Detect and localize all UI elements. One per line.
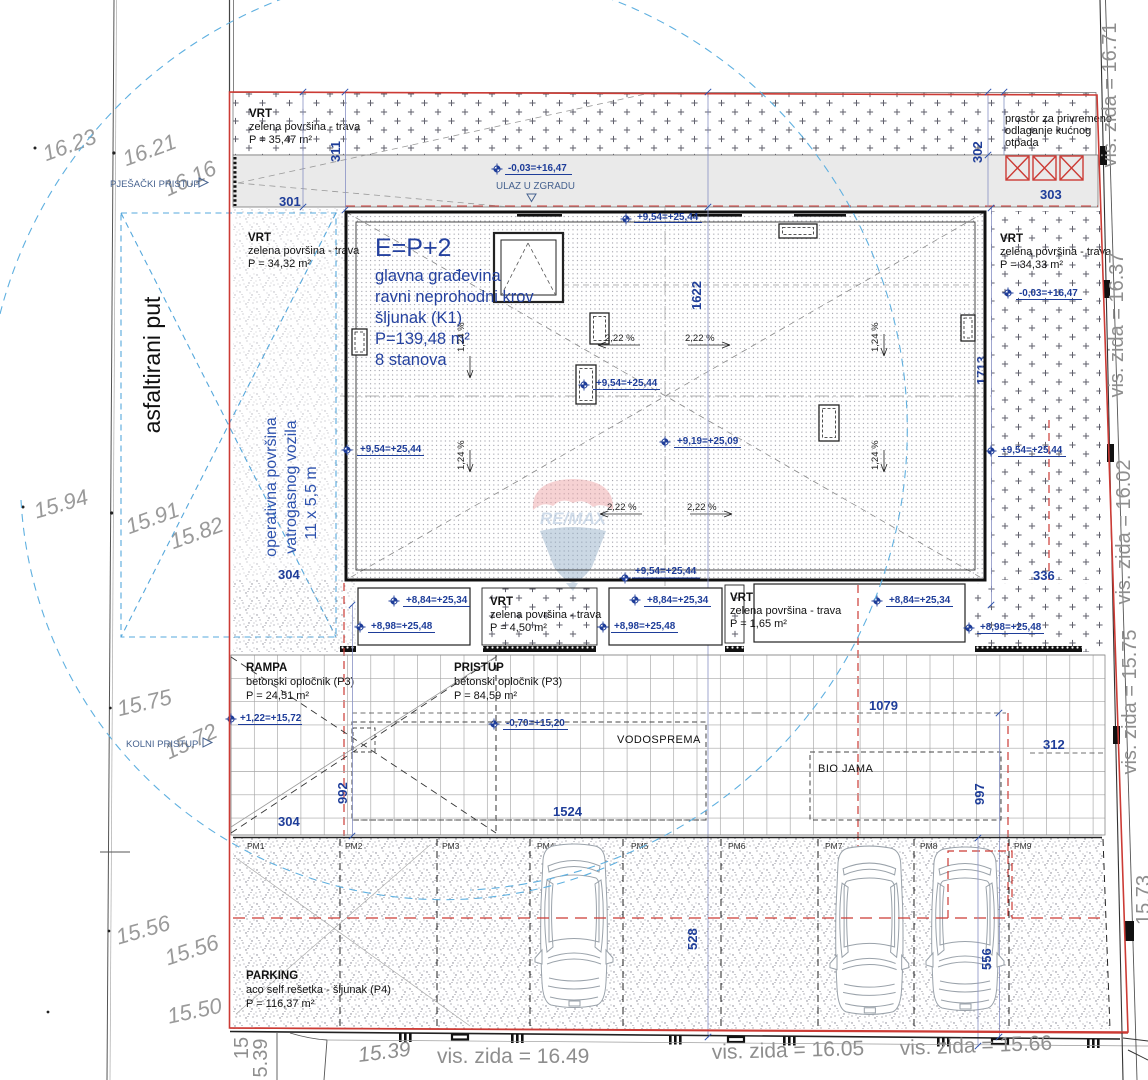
svg-text:ULAZ U ZGRADU: ULAZ U ZGRADU (496, 181, 575, 192)
svg-text:vis. zida = 15.75: vis. zida = 15.75 (1119, 629, 1141, 774)
svg-text:5.39: 5.39 (250, 1039, 272, 1078)
svg-text:+8,84=+25,34: +8,84=+25,34 (406, 595, 468, 606)
svg-text:15.73: 15.73 (1133, 875, 1148, 925)
svg-text:PM9: PM9 (1014, 841, 1032, 851)
svg-text:RAMPA: RAMPA (246, 662, 287, 674)
svg-text:prostor za privremeno: prostor za privremeno (1005, 113, 1112, 125)
svg-text:-0,03=+16,47: -0,03=+16,47 (508, 163, 567, 174)
svg-text:528: 528 (685, 928, 700, 950)
svg-text:vis. zida = 16.05: vis. zida = 16.05 (712, 1037, 865, 1064)
svg-text:P = 84,59 m²: P = 84,59 m² (454, 690, 517, 702)
svg-text:vis. zida = 16.37: vis. zida = 16.37 (1106, 252, 1128, 397)
svg-text:asfaltirani put: asfaltirani put (139, 296, 165, 433)
svg-text:2,22 %: 2,22 % (685, 333, 715, 344)
svg-text:RE/MAX: RE/MAX (540, 509, 608, 528)
svg-text:VODOSPREMA: VODOSPREMA (617, 734, 701, 746)
svg-text:311: 311 (328, 141, 343, 162)
svg-text:operativna površina: operativna površina (263, 417, 280, 557)
svg-text:+8,98=+25,48: +8,98=+25,48 (614, 621, 676, 632)
svg-text:+9,19=+25,09: +9,19=+25,09 (677, 436, 739, 447)
svg-text:+1,22=+15,72: +1,22=+15,72 (240, 713, 302, 724)
svg-text:PARKING: PARKING (246, 970, 298, 982)
svg-text:PM2: PM2 (345, 841, 363, 851)
svg-text:BIO JAMA: BIO JAMA (818, 763, 874, 775)
svg-text:PM3: PM3 (442, 841, 460, 851)
svg-text:304: 304 (278, 567, 300, 582)
svg-text:PM6: PM6 (728, 841, 746, 851)
svg-text:2,22 %: 2,22 % (607, 502, 637, 513)
svg-text:2,22 %: 2,22 % (605, 333, 635, 344)
svg-text:E=P+2: E=P+2 (375, 234, 451, 262)
svg-text:VRT: VRT (249, 108, 272, 120)
svg-text:312: 312 (1043, 737, 1065, 752)
svg-text:P = 34,33 m²: P = 34,33 m² (1000, 259, 1063, 271)
svg-text:glavna građevina: glavna građevina (375, 267, 501, 285)
svg-text:1,24 %: 1,24 % (870, 440, 881, 470)
svg-text:šljunak (K1): šljunak (K1) (375, 309, 462, 327)
svg-text:zelena površina - trava: zelena površina - trava (248, 245, 360, 257)
svg-text:303: 303 (1040, 187, 1062, 202)
svg-text:P = 24,51 m²: P = 24,51 m² (246, 690, 309, 702)
svg-text:992: 992 (335, 782, 350, 804)
svg-text:+9,54=+25,44: +9,54=+25,44 (635, 566, 697, 577)
svg-text:+9,54=+25,44: +9,54=+25,44 (637, 212, 699, 223)
svg-text:aco self rešetka - šljunak (P4: aco self rešetka - šljunak (P4) (246, 984, 391, 996)
svg-text:+8,84=+25,34: +8,84=+25,34 (889, 595, 951, 606)
svg-text:997: 997 (972, 783, 987, 805)
svg-text:-0,70=+15,20: -0,70=+15,20 (506, 718, 565, 729)
svg-text:PM1: PM1 (247, 841, 265, 851)
svg-text:zelena površina - trava: zelena površina - trava (1000, 246, 1112, 258)
svg-text:PM8: PM8 (920, 841, 938, 851)
svg-text:+9,54=+25,44: +9,54=+25,44 (360, 444, 422, 455)
svg-text:zelena površina - trava: zelena površina - trava (730, 605, 842, 617)
svg-text:301: 301 (279, 194, 301, 209)
svg-text:odlaganje kućnog: odlaganje kućnog (1005, 125, 1091, 137)
svg-text:1524: 1524 (553, 804, 583, 819)
svg-text:KOLNI PRISTUP: KOLNI PRISTUP (126, 739, 198, 750)
svg-text:2,22 %: 2,22 % (687, 502, 717, 513)
svg-text:+8,98=+25,48: +8,98=+25,48 (371, 621, 433, 632)
svg-text:VRT: VRT (490, 596, 513, 608)
svg-text:VRT: VRT (1000, 233, 1023, 245)
svg-text:P = 4,50 m²: P = 4,50 m² (490, 622, 547, 634)
svg-text:+8,98=+25,48: +8,98=+25,48 (980, 622, 1042, 633)
svg-text:PM5: PM5 (631, 841, 649, 851)
svg-text:302: 302 (970, 141, 985, 163)
svg-text:8 stanova: 8 stanova (375, 351, 447, 369)
svg-text:PJEŠAČKI PRISTUP: PJEŠAČKI PRISTUP (110, 179, 200, 190)
svg-text:otpada: otpada (1005, 137, 1040, 149)
svg-text:1622: 1622 (689, 281, 704, 310)
svg-text:PM7: PM7 (825, 841, 843, 851)
svg-text:1,24 %: 1,24 % (870, 322, 881, 352)
svg-text:304: 304 (278, 814, 300, 829)
svg-text:+8,84=+25,34: +8,84=+25,34 (647, 595, 709, 606)
svg-text:vatrogasnog vozila: vatrogasnog vozila (283, 420, 300, 554)
svg-text:VRT: VRT (248, 232, 271, 244)
svg-text:1079: 1079 (869, 698, 898, 713)
svg-text:ravni neprohodni krov: ravni neprohodni krov (375, 288, 534, 306)
svg-text:1,24 %: 1,24 % (456, 322, 467, 352)
svg-text:1,24 %: 1,24 % (456, 440, 467, 470)
svg-text:betonski opločnik (P3): betonski opločnik (P3) (454, 676, 562, 688)
svg-text:-0,03=+16,47: -0,03=+16,47 (1019, 288, 1078, 299)
svg-text:336: 336 (1033, 568, 1055, 583)
svg-text:11 x 5,5 m: 11 x 5,5 m (303, 466, 320, 540)
svg-text:zelena površina - trava: zelena površina - trava (249, 121, 361, 133)
svg-text:+9,54=+25,44: +9,54=+25,44 (1001, 445, 1063, 456)
svg-text:vis. zida = 16.71: vis. zida = 16.71 (1099, 22, 1121, 167)
svg-text:zelena površina - trava: zelena površina - trava (490, 609, 602, 621)
svg-text:vis. zida = 16.02: vis. zida = 16.02 (1113, 459, 1135, 604)
svg-text:+9,54=+25,44: +9,54=+25,44 (596, 378, 658, 389)
svg-text:556: 556 (979, 948, 994, 970)
svg-text:P = 1,65 m²: P = 1,65 m² (730, 618, 787, 630)
svg-text:vis. zida = 16.49: vis. zida = 16.49 (437, 1045, 589, 1068)
svg-text:VRT: VRT (730, 592, 753, 604)
svg-text:PRISTUP: PRISTUP (454, 662, 504, 674)
svg-text:P = 34,32 m²: P = 34,32 m² (248, 258, 311, 270)
svg-text:P = 116,37 m²: P = 116,37 m² (246, 998, 315, 1010)
